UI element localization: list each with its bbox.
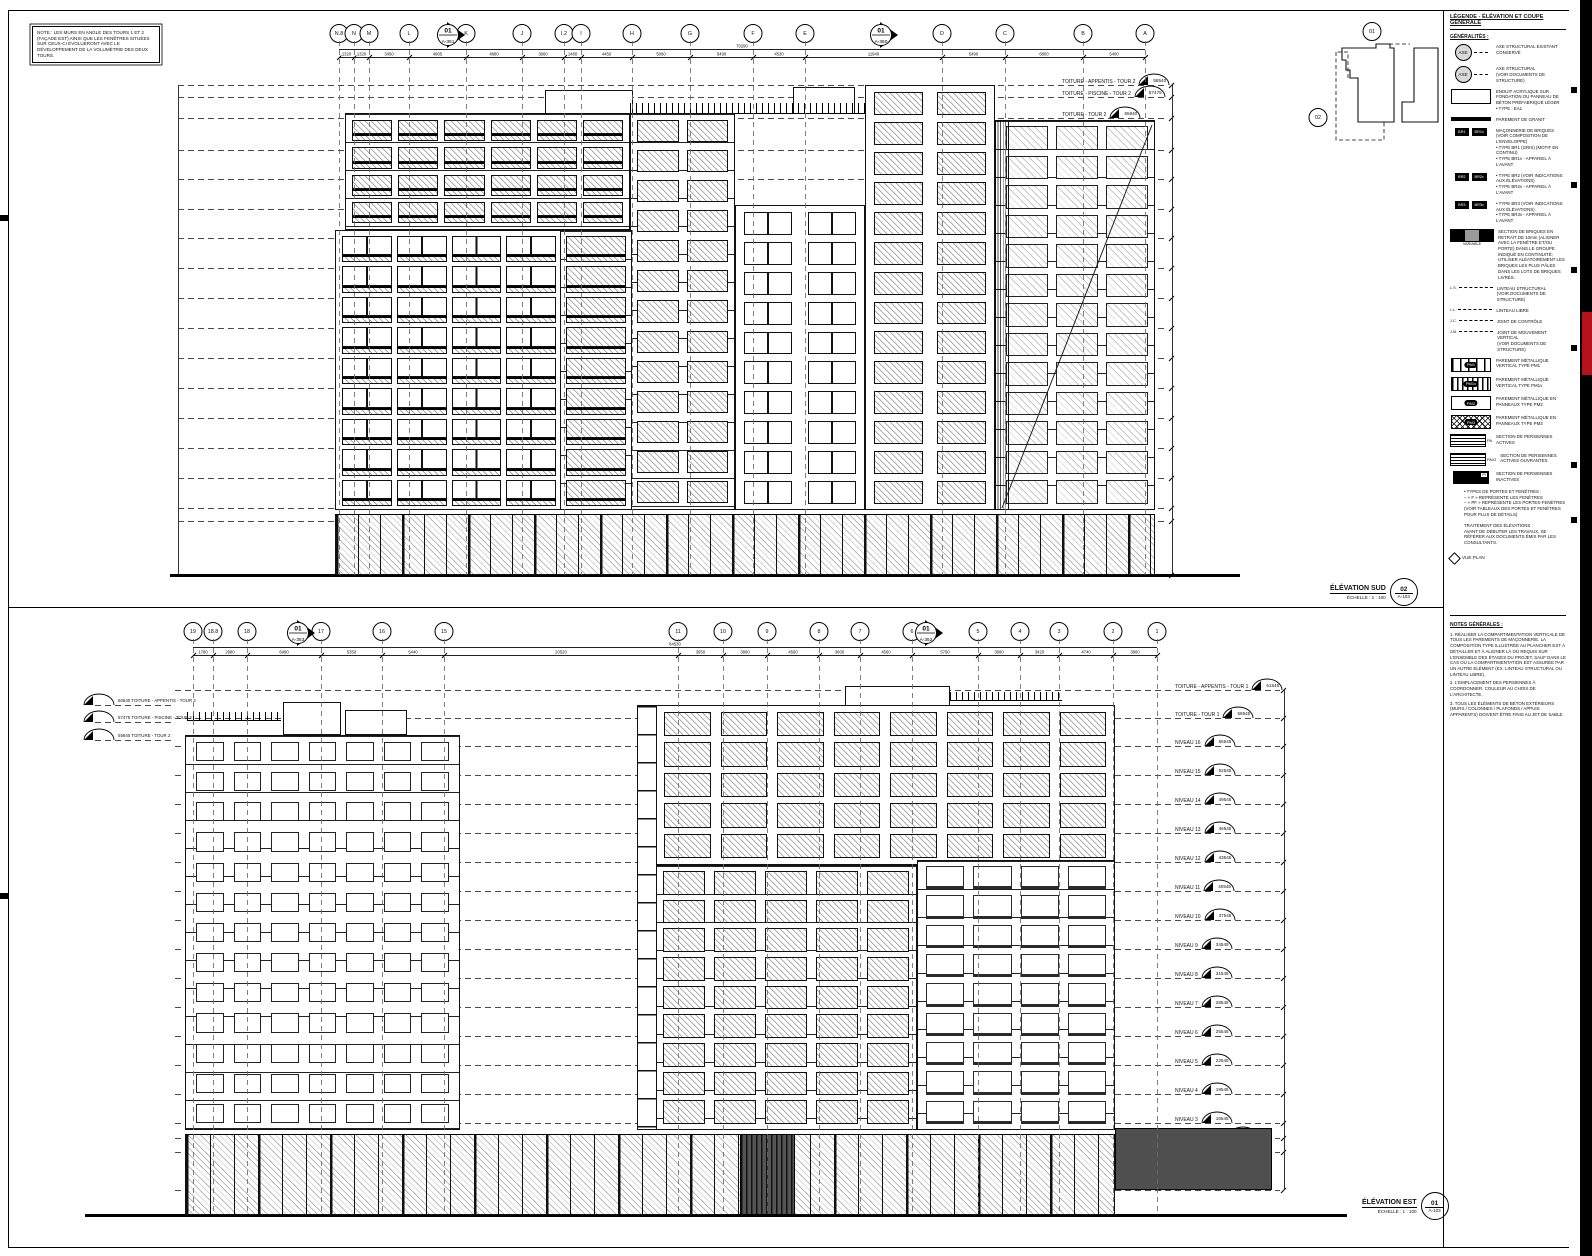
legend-swatch: VARIABLE — [1450, 229, 1494, 246]
legend-swatch: BR1BR1v — [1450, 128, 1492, 136]
pa-swatch: PA — [1450, 434, 1492, 447]
viewtitle-sud-bubble: 02 A-103 — [1390, 578, 1418, 606]
legend-item: J.M.JOINT DE MOUVEMENT VERTICAL (VOIR DO… — [1450, 330, 1566, 353]
brickmix-row — [1450, 229, 1494, 242]
legend-swatch — [1450, 117, 1492, 121]
line-swatch — [1459, 320, 1493, 321]
diamond-icon — [1448, 552, 1461, 565]
legend-item: L.L.LINTEAU LIBRE — [1450, 308, 1566, 314]
key-plan: 01 02 — [1318, 26, 1438, 152]
pm-tag: PM1 — [1464, 362, 1477, 368]
legend-item: BR1BR1vMAÇONNERIE DE BRIQUES (VOIR COMPO… — [1450, 128, 1566, 168]
brick-tag: BR3 — [1455, 201, 1468, 209]
seg — [1479, 230, 1493, 241]
legend-item-label: PAREMENT MÉTALLIQUE VERTICAL TYPE PM1v — [1496, 377, 1566, 388]
legend-item-label: • TYPE BR3 (VOIR INDICATIONS AUX ÉLÉVATI… — [1496, 201, 1566, 224]
key-plan-graphic — [1318, 26, 1438, 152]
legend-swatch: AXE — [1450, 44, 1492, 61]
legend-swatch: PA — [1450, 434, 1492, 447]
legend-item: AXEAXE STRUCTURAL EXISTANT CONSERVÉ — [1450, 44, 1566, 61]
pa-box — [1450, 453, 1486, 466]
legend-item-label: AXE STRUCTURAL EXISTANT CONSERVÉ — [1496, 44, 1566, 55]
viewtitle-sud-name: ÉLÉVATION SUD — [1330, 585, 1386, 594]
pi-box: PI — [1453, 471, 1489, 484]
viewtitle-est: ÉLÉVATION EST ÉCHELLE : 1 : 100 01 A-103 — [1362, 1192, 1449, 1220]
line-swatch — [1459, 287, 1493, 288]
legend-swatch: BR3BR3v — [1450, 201, 1492, 209]
legend-note: 3. TOUS LES ÉLÉMENTS DE BÉTON EXTÉRIEURS… — [1450, 701, 1566, 718]
legend-item: PM2PAREMENT MÉTALLIQUE EN PANNEAUX TYPE … — [1450, 396, 1566, 410]
legend-swatch: PM1 — [1450, 358, 1492, 372]
seg — [1465, 230, 1479, 241]
legend-swatch: PM3 — [1450, 415, 1492, 429]
legend-item-label: SECTION DE PERSIENNES INACTIVES — [1496, 471, 1566, 482]
viewtitle-sud: ÉLÉVATION SUD ÉCHELLE : 1 : 100 02 A-103 — [1330, 578, 1418, 606]
legend-item-label: AXE STRUCTURAL (VOIR DOCUMENTS DE STRUCT… — [1496, 66, 1566, 83]
legend-item-label: LINTEAU LIBRE — [1496, 308, 1528, 314]
legend-item-label: SECTION DE PERSIENNES ACTIVES — [1496, 434, 1566, 445]
axe-line — [1474, 52, 1488, 53]
pa-swatch: PA/O — [1450, 453, 1496, 466]
brick-tag: BR1 — [1455, 128, 1468, 136]
legend-note: 1. RÉALISER LA COMPARTIMENTATION VERTICA… — [1450, 632, 1566, 678]
line-symbol: L.L. — [1450, 308, 1456, 312]
legend-panel: LÉGENDE - ÉLÉVATION ET COUPE GÉNÉRALE GÉ… — [1443, 10, 1569, 1248]
viewtitle-est-scale: ÉCHELLE : 1 : 100 — [1362, 1209, 1417, 1214]
line-symbol: L.S. — [1450, 286, 1457, 290]
viewtitle-est-name: ÉLÉVATION EST — [1362, 1199, 1417, 1208]
axe-symbol-icon: AXE — [1455, 66, 1472, 83]
legend-item: PM1vPAREMENT MÉTALLIQUE VERTICAL TYPE PM… — [1450, 377, 1566, 391]
legend-item-label: PAREMENT MÉTALLIQUE EN PANNEAUX TYPE PM3 — [1496, 415, 1566, 426]
legend-item: PASECTION DE PERSIENNES ACTIVES — [1450, 434, 1566, 447]
brickmix-sub: VARIABLE — [1450, 242, 1494, 246]
granit-swatch — [1451, 117, 1491, 121]
legend-item: J.C.JOINT DE CONTRÔLE — [1450, 319, 1566, 325]
legend-title: LÉGENDE - ÉLÉVATION ET COUPE GÉNÉRALE — [1450, 14, 1566, 30]
pi-tag: PI — [1481, 473, 1487, 477]
legend-item-label: MAÇONNERIE DE BRIQUES (VOIR COMPOSITION … — [1496, 128, 1566, 168]
legend-swatch: AXE — [1450, 66, 1492, 83]
legend-item-label: TRAITEMENT DES ÉLÉVATIONS : AVANT DE DÉB… — [1464, 523, 1566, 546]
legend-item: PM1PAREMENT MÉTALLIQUE VERTICAL TYPE PM1 — [1450, 358, 1566, 372]
brick-swatch: BR3BR3v — [1455, 201, 1487, 209]
legend-swatch — [1450, 89, 1492, 104]
pa-box — [1450, 434, 1486, 447]
legend-notes-title: NOTES GÉNÉRALES : — [1450, 622, 1566, 628]
pm-swatch: PM1 — [1451, 358, 1491, 372]
drawing-sheet: { "sheet": { "note_box": "NOTE : LES MUR… — [0, 0, 1592, 1256]
line-swatch — [1458, 309, 1492, 310]
legend-item-label: JOINT DE MOUVEMENT VERTICAL (VOIR DOCUME… — [1497, 330, 1566, 353]
legend-item-label: ENDUIT ACRYLIQUE SUR FONDATION OU PANNEA… — [1496, 89, 1566, 112]
brick-tag: BR1v — [1472, 128, 1487, 136]
legend-item: PISECTION DE PERSIENNES INACTIVES — [1450, 471, 1566, 484]
pi-swatch: PI — [1453, 471, 1489, 484]
pm-swatch: PM1v — [1451, 377, 1491, 391]
brick-tag: BR2v — [1472, 173, 1487, 181]
legend-item: ENDUIT ACRYLIQUE SUR FONDATION OU PANNEA… — [1450, 89, 1566, 112]
legend-notes: NOTES GÉNÉRALES : 1. RÉALISER LA COMPART… — [1450, 615, 1566, 718]
seg — [1451, 230, 1465, 241]
legend-item-label: JOINT DE CONTRÔLE — [1497, 319, 1543, 325]
legend-keyref: VUE PLAN — [1450, 554, 1566, 563]
axe-symbol-icon: AXE — [1455, 44, 1472, 61]
legend-item: PAREMENT DE GRANIT — [1450, 117, 1566, 123]
legend-item-label: • TYPES DE PORTES ET FENÊTRES : – « F » … — [1464, 489, 1566, 518]
legend-item: TRAITEMENT DES ÉLÉVATIONS : AVANT DE DÉB… — [1450, 523, 1566, 546]
brick-swatch: BR2BR2v — [1455, 173, 1487, 181]
legend-item: • TYPES DE PORTES ET FENÊTRES : – « F » … — [1450, 489, 1566, 518]
legend-item: VARIABLESECTION DE BRIQUES EN RETRAIT DE… — [1450, 229, 1566, 280]
brick-swatch: BR1BR1v — [1455, 128, 1487, 136]
annotations-layer — [0, 0, 1592, 1256]
line-symbol: J.M. — [1450, 330, 1457, 334]
legend-item-label: SECTION DE BRIQUES EN RETRAIT DE 10mm (A… — [1498, 229, 1566, 280]
legend-swatch: J.M. — [1450, 330, 1493, 334]
legend-swatch: PM1v — [1450, 377, 1492, 391]
legend-item: PM3PAREMENT MÉTALLIQUE EN PANNEAUX TYPE … — [1450, 415, 1566, 429]
axe-line — [1474, 74, 1488, 75]
legend-note: 2. L'EMPLACEMENT DES PERSIENNES À COORDO… — [1450, 680, 1566, 697]
legend-item: BR2BR2v• TYPE BR2 (VOIR INDICATIONS AUX … — [1450, 173, 1566, 196]
brick-tag: BR3v — [1472, 201, 1487, 209]
viewtitle-sud-scale: ÉCHELLE : 1 : 100 — [1330, 595, 1386, 600]
brickmix-swatch: VARIABLE — [1450, 229, 1494, 246]
legend-item-label: SECTION DE PERSIENNES ACTIVES OUVRANTES — [1500, 453, 1566, 464]
pm-swatch: PM2 — [1451, 396, 1491, 410]
pm-tag: PM1v — [1463, 381, 1478, 387]
legend-swatch: J.C. — [1450, 319, 1493, 323]
legend-item-label: PAREMENT MÉTALLIQUE EN PANNEAUX TYPE PM2 — [1496, 396, 1566, 407]
legend-item-label: PAREMENT MÉTALLIQUE VERTICAL TYPE PM1 — [1496, 358, 1566, 369]
key-plan-marker-left: 02 — [1309, 108, 1328, 127]
legend-swatch: L.S. — [1450, 286, 1493, 290]
legend-items: AXEAXE STRUCTURAL EXISTANT CONSERVÉAXEAX… — [1450, 44, 1566, 546]
legend-section-title: GÉNÉRALITÉS : — [1450, 34, 1566, 40]
legend-swatch: PA/O — [1450, 453, 1496, 466]
stipple-swatch — [1451, 89, 1491, 104]
key-plan-marker-top: 01 — [1363, 22, 1382, 41]
pa-tag: PA — [1487, 438, 1492, 443]
pa-tag: PA/O — [1487, 457, 1496, 462]
pm-tag: PM2 — [1464, 400, 1477, 406]
legend-swatch: PI — [1450, 471, 1492, 484]
pm-tag: PM3 — [1464, 419, 1477, 425]
legend-swatch: BR2BR2v — [1450, 173, 1492, 181]
legend-item: PA/OSECTION DE PERSIENNES ACTIVES OUVRAN… — [1450, 453, 1566, 466]
legend-item: L.S.LINTEAU STRUCTURAL (VOIR DOCUMENTS D… — [1450, 286, 1566, 303]
line-swatch — [1459, 331, 1493, 332]
legend-item-label: PAREMENT DE GRANIT — [1496, 117, 1545, 123]
pm-swatch: PM3 — [1451, 415, 1491, 429]
legend-item: BR3BR3v• TYPE BR3 (VOIR INDICATIONS AUX … — [1450, 201, 1566, 224]
legend-swatch: L.L. — [1450, 308, 1492, 312]
legend-item: AXEAXE STRUCTURAL (VOIR DOCUMENTS DE STR… — [1450, 66, 1566, 83]
brick-tag: BR2 — [1455, 173, 1468, 181]
legend-item-label: • TYPE BR2 (VOIR INDICATIONS AUX ÉLÉVATI… — [1496, 173, 1566, 196]
legend-item-label: LINTEAU STRUCTURAL (VOIR DOCUMENTS DE ST… — [1497, 286, 1566, 303]
legend-swatch: PM2 — [1450, 396, 1492, 410]
line-symbol: J.C. — [1450, 319, 1457, 323]
